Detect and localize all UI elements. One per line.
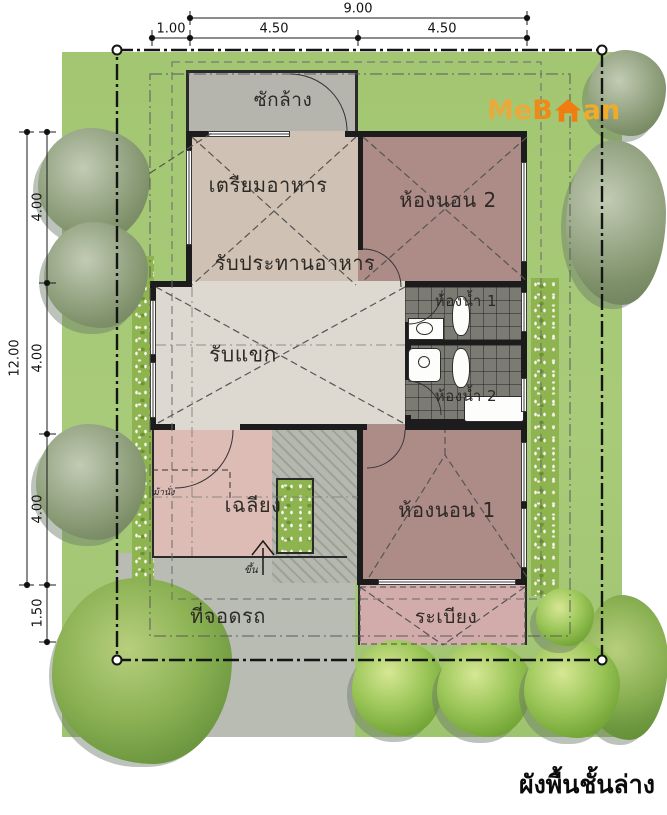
wall [345,131,527,137]
label-terrace: ระเบียง [415,602,477,632]
wall [240,424,363,430]
dim-top-seg1: 1.00 [157,22,186,37]
dim-top-overall: 9.00 [344,2,373,17]
label-bench: ม้านั่ง [153,485,175,499]
planter-box [276,478,314,554]
window [521,292,527,332]
label-bath1: ห้องน้ำ 1 [435,289,497,313]
tree [44,222,148,328]
bush [437,642,532,737]
toilet [452,348,470,388]
label-bedroom1: ห้องนอน 1 [398,494,495,526]
house-icon [554,98,582,123]
wall [357,579,378,585]
window [186,150,192,245]
window [521,442,527,502]
window [521,162,527,262]
floor-plan-canvas: 9.00 1.00 4.50 4.50 12.00 4.00 4.00 4.00… [0,0,667,815]
wall [405,340,527,345]
label-stairs-up: ขึ้น [244,563,258,578]
label-washing: ซักล้าง [254,85,313,115]
window [521,508,527,568]
label-bath2: ห้องน้ำ 2 [435,384,497,408]
dim-left-seg2: 4.00 [31,344,46,373]
terrace-edge [525,585,527,645]
wall [358,131,363,250]
tree [36,424,146,540]
wall [357,424,363,585]
wall [186,70,358,73]
wall [405,281,527,287]
tree [566,140,666,305]
logo-text-b: B [532,95,553,126]
bush [352,640,444,736]
label-living: รับแขก [209,339,277,372]
logo-text-an: an [583,95,620,126]
wall [355,70,358,131]
dim-left-overall: 12.00 [8,339,23,376]
window [150,300,156,355]
room-living [150,281,405,430]
label-porch: เฉลียง [225,489,282,521]
bush [536,588,594,646]
logo-mebaan: MeBan [487,95,620,126]
terrace-edge [358,585,360,645]
dim-left-seg4: 1.50 [31,599,46,628]
window [378,579,516,585]
dim-top-seg2: 4.50 [260,22,289,37]
porch-edge [152,556,347,558]
label-bedroom2: ห้องนอน 2 [399,184,496,216]
wall [405,424,527,430]
bush [524,640,620,738]
logo-text-me: Me [487,95,532,126]
window [208,131,290,137]
dim-top-seg3: 4.50 [428,22,457,37]
wall [186,70,189,131]
dim-left-seg3: 4.00 [31,495,46,524]
shower-drain [418,356,430,368]
flower-bed-east [531,278,559,596]
plan-title: ผังพื้นชั้นล่าง [519,765,655,805]
window [521,378,527,412]
label-dining: รับประทานอาหาร [215,247,376,279]
window [150,362,156,418]
label-carport: ที่จอดรถ [190,600,266,632]
dim-left-seg1: 4.00 [31,193,46,222]
wall [150,281,192,287]
sink-basin [416,322,433,335]
label-kitchen: เตรียมอาหาร [209,169,328,201]
